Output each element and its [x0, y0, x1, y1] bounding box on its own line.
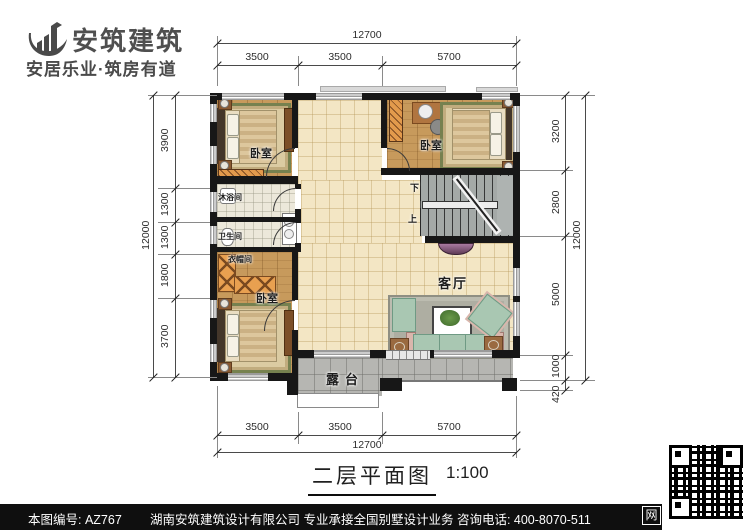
qr-finder — [669, 445, 692, 468]
dim-label: 5700 — [424, 422, 474, 433]
room-label-bedroom-bl: 卧室 — [256, 294, 278, 305]
extension-line — [298, 412, 299, 444]
dim-label: 420 — [551, 369, 562, 419]
stair-landing — [497, 176, 513, 235]
stair-handrail — [422, 201, 498, 209]
wall — [292, 93, 298, 148]
dim-label: 3200 — [551, 106, 562, 156]
dimension-line — [217, 65, 517, 66]
dim-label: 12700 — [337, 30, 397, 41]
room-label-cloakroom: 衣帽间 — [228, 256, 252, 264]
qr-finder — [669, 496, 692, 519]
window — [316, 93, 362, 100]
dim-label: 5700 — [424, 52, 474, 63]
dimension-line — [153, 95, 154, 377]
window — [513, 106, 520, 152]
desk-lamp — [418, 104, 433, 119]
window — [210, 300, 217, 318]
room-label-shower: 沐浴间 — [218, 194, 242, 202]
hall-floor — [301, 180, 422, 248]
nightstand — [218, 298, 232, 310]
window — [513, 302, 520, 336]
dimension-line — [585, 95, 586, 380]
room-label-living: 客厅 — [438, 277, 468, 290]
brand-logo-icon — [24, 16, 70, 60]
window — [314, 350, 370, 358]
dimension-line — [565, 95, 566, 390]
overhang-line — [320, 86, 446, 92]
pillow — [227, 114, 239, 136]
sofa-single-left — [392, 298, 416, 332]
wall — [381, 93, 387, 148]
nightstand — [218, 362, 232, 373]
wardrobe — [389, 96, 403, 142]
drawing-title-text: 二层平面图 — [308, 460, 436, 496]
brand-tagline: 安居乐业·筑房有道 — [26, 55, 177, 80]
qr-finder — [720, 445, 743, 468]
company-info: 湖南安筑建筑设计有限公司 专业承接全国别墅设计业务 咨询电话: 400-8070… — [150, 509, 591, 528]
drawing-scale: 1:100 — [446, 460, 489, 483]
room-label-bedroom-tl: 卧室 — [250, 149, 272, 160]
window — [222, 93, 284, 100]
window — [513, 268, 520, 296]
dim-label: 3900 — [160, 115, 171, 165]
floor-plan-page: 安筑建筑 安居乐业·筑房有道 安筑建筑 安筑建筑 安筑建筑 安筑建筑 — [0, 0, 750, 530]
window — [210, 104, 217, 122]
dim-label: 2800 — [551, 177, 562, 227]
dim-label: 12000 — [572, 207, 583, 263]
terrace-door — [386, 350, 430, 360]
pillar — [380, 378, 402, 391]
extension-line — [148, 377, 217, 378]
terrace-step — [297, 393, 379, 408]
dim-label: 3500 — [315, 52, 365, 63]
dim-label: 12700 — [337, 440, 397, 451]
extension-line — [298, 56, 299, 86]
window — [228, 373, 268, 381]
room-label-toilet: 卫生间 — [218, 233, 242, 241]
extension-line — [217, 386, 218, 458]
wall — [292, 330, 298, 373]
bed-headboard — [217, 108, 225, 164]
dim-label: 3500 — [232, 52, 282, 63]
dim-label: 3500 — [315, 422, 365, 433]
hall-floor — [298, 100, 382, 184]
wall — [425, 236, 520, 243]
extension-line — [148, 95, 217, 96]
window — [210, 344, 217, 362]
qr-code — [662, 438, 750, 530]
brand-name: 安筑建筑 — [72, 21, 184, 58]
dim-label: 12000 — [141, 207, 152, 263]
wall — [217, 217, 295, 222]
wall — [210, 247, 298, 252]
extension-line — [516, 396, 517, 458]
window — [210, 226, 217, 244]
dim-label: 3500 — [232, 422, 282, 433]
stair-label-up: 上 — [408, 215, 417, 224]
wall — [295, 209, 301, 223]
wall — [210, 176, 298, 184]
dim-label: 5000 — [551, 269, 562, 319]
pillar — [287, 373, 298, 395]
dimension-line — [175, 95, 176, 377]
drawing-number: 本图编号: AZ767 — [28, 509, 122, 528]
window — [434, 350, 492, 358]
dim-label: 3700 — [160, 311, 171, 361]
room-label-bedroom-tr: 卧室 — [420, 141, 442, 152]
pillow — [227, 137, 239, 159]
dimension-line — [217, 43, 517, 44]
dimension-line — [217, 435, 517, 436]
wall — [292, 252, 298, 300]
pillow — [227, 314, 239, 335]
pillow — [490, 134, 502, 156]
window — [482, 93, 510, 100]
dimension-line — [217, 452, 517, 453]
bed-blanket — [452, 110, 490, 160]
web-label: 网 — [642, 506, 661, 525]
window — [210, 192, 217, 212]
bed-headboard — [217, 308, 225, 362]
extension-line — [382, 56, 383, 86]
drawing-title: 二层平面图 1:100 — [308, 460, 489, 496]
dim-label: 1800 — [160, 250, 171, 300]
window — [210, 146, 217, 164]
pillar — [502, 378, 517, 391]
room-label-terrace: 露台 — [326, 373, 364, 386]
table-plant — [440, 310, 460, 326]
pillow — [227, 336, 239, 357]
pillow — [490, 112, 502, 134]
stair-label-down: 下 — [410, 184, 419, 193]
overhang-line — [476, 87, 518, 92]
closet-cabinet — [234, 276, 276, 294]
